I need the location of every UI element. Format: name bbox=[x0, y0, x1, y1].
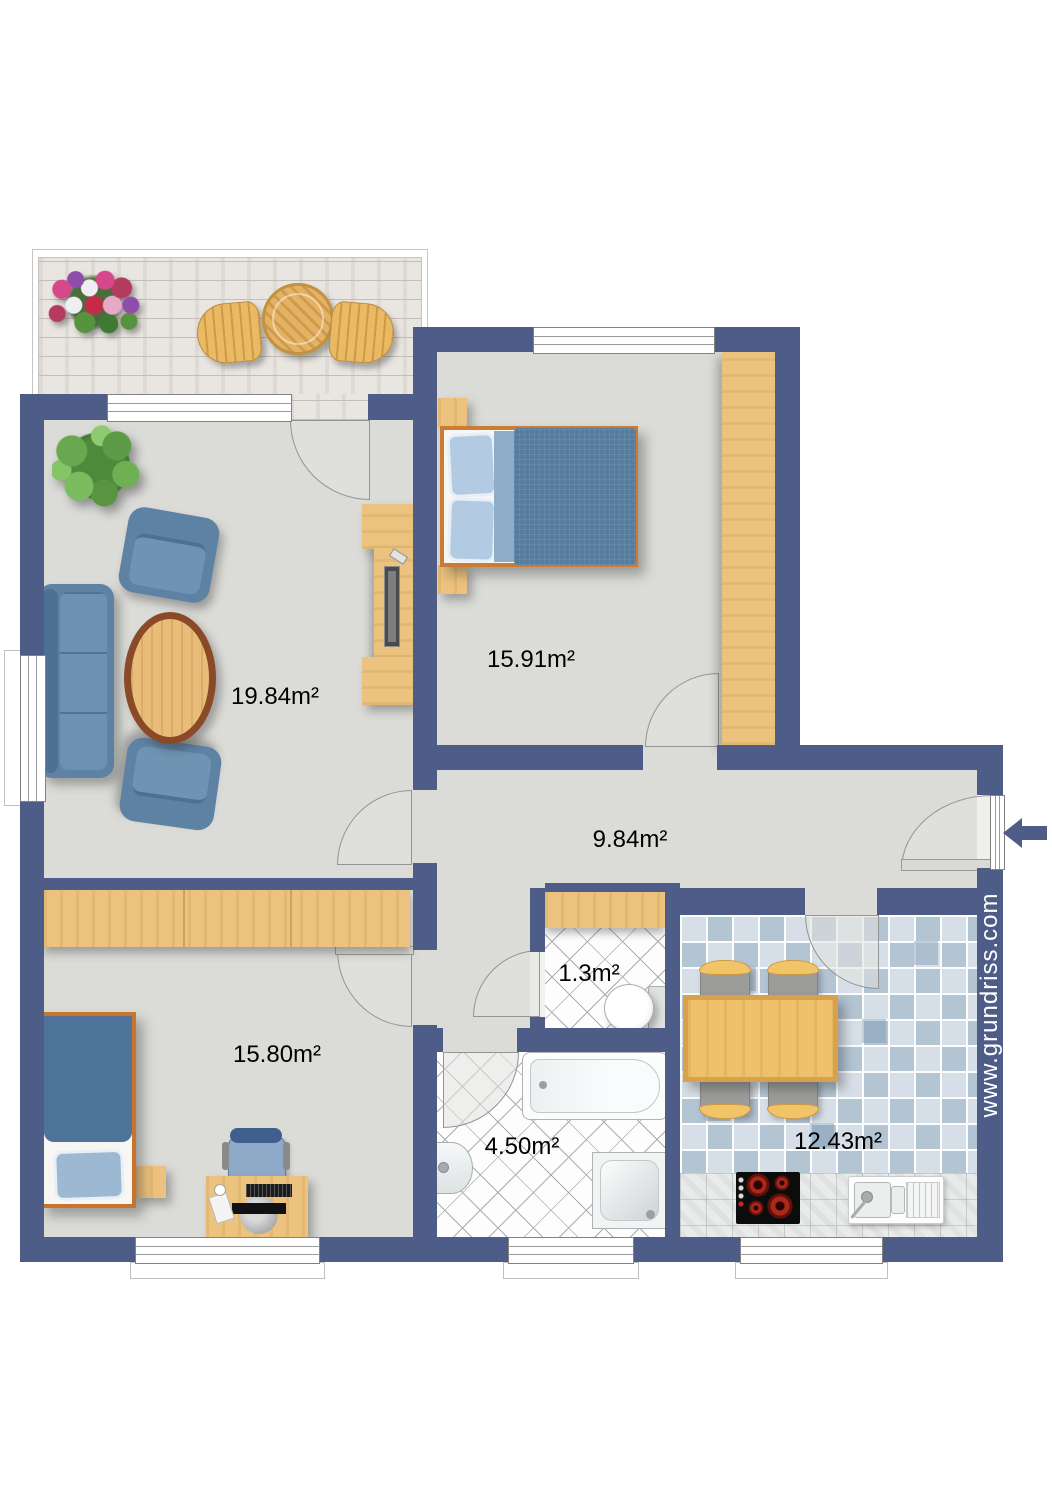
kitchen-chair-icon bbox=[700, 1076, 750, 1116]
sofa-icon bbox=[38, 584, 114, 778]
living-room-area-label: 19.84m² bbox=[231, 683, 319, 711]
plant-icon bbox=[52, 424, 142, 508]
window bbox=[533, 327, 715, 354]
shower-drain bbox=[646, 1210, 655, 1219]
wall bbox=[413, 745, 643, 770]
wall bbox=[413, 327, 533, 352]
patio-table-icon bbox=[262, 283, 334, 355]
window bbox=[508, 1237, 634, 1264]
duvet bbox=[44, 1016, 132, 1142]
kitchen-tile bbox=[914, 941, 938, 965]
wall bbox=[20, 878, 413, 890]
chair-armrest bbox=[283, 1142, 290, 1170]
window-sill bbox=[735, 1262, 888, 1279]
flower-box-icon bbox=[48, 270, 140, 334]
wall bbox=[877, 888, 977, 915]
dining-table-icon bbox=[683, 995, 838, 1082]
kitchen-tile bbox=[862, 1019, 886, 1043]
wall bbox=[530, 888, 545, 952]
wall bbox=[20, 800, 44, 1262]
duvet bbox=[514, 428, 636, 565]
desk-chair-back bbox=[230, 1128, 282, 1143]
armchair-icon bbox=[116, 505, 222, 606]
wall bbox=[413, 1028, 443, 1052]
bedside-table bbox=[134, 1166, 166, 1198]
window bbox=[740, 1237, 883, 1264]
bedroom-2-door-leaf bbox=[335, 946, 414, 955]
wall bbox=[413, 863, 437, 950]
floor-plan: 19.84m² 15.91m² 9.84m² 1.3m² 15.80m² 4.5… bbox=[0, 0, 1052, 1500]
wall bbox=[545, 883, 665, 892]
kitchen-sink-icon bbox=[848, 1176, 944, 1224]
wall bbox=[318, 1237, 508, 1262]
door-threshold bbox=[805, 888, 877, 915]
wardrobe-seam bbox=[290, 890, 292, 947]
wall bbox=[44, 394, 107, 420]
entrance-arrow-icon bbox=[1003, 818, 1022, 848]
sink-basin bbox=[854, 1182, 891, 1218]
shower-icon bbox=[592, 1152, 667, 1229]
bathtub-icon bbox=[522, 1052, 668, 1120]
tv-cabinet bbox=[362, 504, 414, 549]
pillow bbox=[53, 1149, 125, 1201]
wardrobe-seam bbox=[183, 890, 185, 947]
wardrobe bbox=[44, 890, 410, 947]
bedroom-2-area-label: 15.80m² bbox=[233, 1041, 321, 1069]
pillow bbox=[447, 497, 497, 563]
window bbox=[107, 394, 292, 422]
window bbox=[20, 655, 46, 802]
wall bbox=[632, 1237, 740, 1262]
bedside-table bbox=[438, 398, 467, 427]
kitchen-chair-icon bbox=[768, 1076, 818, 1116]
balcony-threshold bbox=[290, 394, 368, 420]
keyboard-icon bbox=[246, 1184, 292, 1197]
wc-shelf bbox=[545, 890, 665, 928]
sink-basin-small bbox=[891, 1186, 905, 1214]
kitchen-area-label: 12.43m² bbox=[794, 1128, 882, 1156]
entrance-arrow-shaft bbox=[1021, 826, 1047, 840]
wall bbox=[977, 745, 1003, 795]
door-threshold bbox=[643, 745, 717, 770]
bathtub-basin bbox=[530, 1059, 660, 1113]
wall bbox=[775, 327, 800, 770]
wall bbox=[881, 1237, 1003, 1262]
wall bbox=[20, 394, 44, 655]
wall bbox=[680, 888, 805, 915]
window-sill bbox=[503, 1262, 639, 1279]
wall bbox=[413, 1025, 437, 1237]
wall bbox=[717, 745, 1003, 770]
chair-armrest bbox=[222, 1142, 229, 1170]
tv-cabinet bbox=[362, 657, 414, 705]
sink-drainboard bbox=[906, 1182, 940, 1218]
window bbox=[135, 1237, 320, 1264]
door-threshold bbox=[413, 950, 437, 1025]
monitor-icon bbox=[232, 1203, 286, 1214]
sink-faucet bbox=[438, 1162, 449, 1173]
wall bbox=[665, 883, 680, 1237]
single-bed-icon bbox=[40, 1012, 136, 1208]
pillow bbox=[446, 432, 497, 498]
watermark: www.grundriss.com bbox=[977, 874, 1003, 1136]
stove-icon bbox=[736, 1172, 800, 1224]
bedside-table bbox=[438, 565, 467, 594]
bedroom-1-area-label: 15.91m² bbox=[487, 646, 575, 674]
window-sill bbox=[130, 1262, 325, 1279]
bathtub-faucet bbox=[539, 1081, 547, 1089]
wall bbox=[20, 1237, 135, 1262]
wc-area-label: 1.3m² bbox=[558, 960, 619, 988]
coffee-table-icon bbox=[124, 612, 216, 744]
double-bed-icon bbox=[440, 426, 638, 567]
door-threshold bbox=[443, 1028, 517, 1052]
wall bbox=[413, 327, 437, 790]
armchair-icon bbox=[118, 736, 224, 832]
wardrobe bbox=[722, 352, 775, 745]
wall bbox=[368, 394, 417, 420]
door-threshold bbox=[413, 790, 437, 863]
tv-icon bbox=[384, 566, 400, 647]
wall bbox=[517, 1028, 665, 1052]
monitor-base-icon bbox=[240, 1196, 278, 1234]
desk-item-icon bbox=[214, 1184, 226, 1196]
bathroom-area-label: 4.50m² bbox=[485, 1133, 560, 1161]
toilet-icon bbox=[604, 984, 654, 1032]
duvet-fold bbox=[494, 431, 515, 562]
hallway-area-label: 9.84m² bbox=[593, 826, 668, 854]
